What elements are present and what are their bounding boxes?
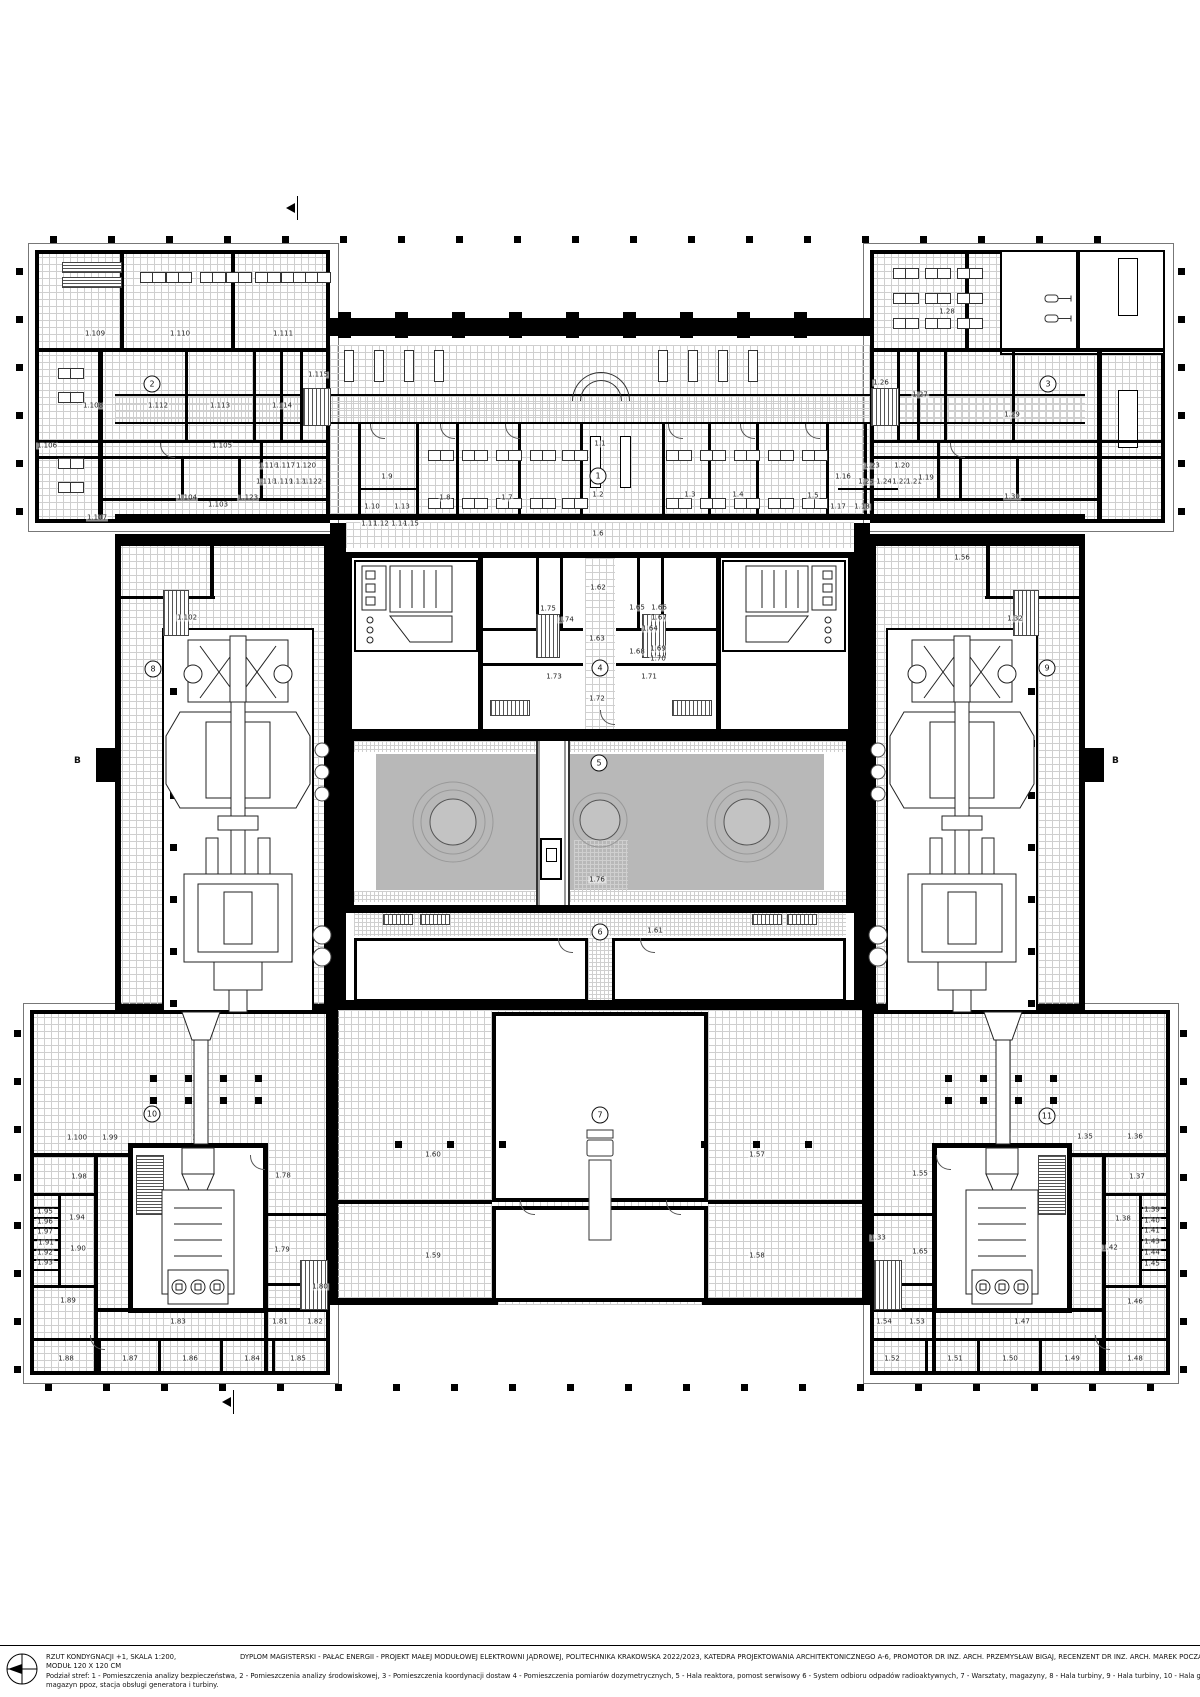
wall [959,456,962,500]
column-dot [1180,1078,1187,1085]
room-outline [886,628,1038,1012]
room-label-1.49: 1.49 [1063,1356,1081,1363]
column-dot [170,948,177,955]
desk [957,318,983,329]
column-dot [1028,688,1035,695]
section-label-b-left: B [74,756,81,766]
drawing-title: RZUT KONDYGNACJI +1, SKALA 1:200, [46,1653,176,1661]
column-dot [170,844,177,851]
column-dot [753,1141,760,1148]
column-dot [14,1366,21,1373]
column-dot [1028,844,1035,851]
column-dot [1089,1384,1096,1391]
column-dot [1094,236,1101,243]
wall [185,348,188,440]
wall [260,440,263,500]
room-label-1.76: 1.76 [588,877,606,884]
column-dot [14,1078,21,1085]
desk [226,272,252,283]
room-label-1.9: 1.9 [380,474,393,481]
room-label-1.75: 1.75 [539,606,557,613]
room-label-1.87: 1.87 [121,1356,139,1363]
room-label-1.92: 1.92 [36,1250,54,1257]
wall [358,422,361,514]
room-label-1.18: 1.18 [853,504,871,511]
wall [115,534,330,542]
room-label-1.38: 1.38 [1114,1216,1132,1223]
column-dot [625,1384,632,1391]
column-dot [1180,1174,1187,1181]
room-label-1.46: 1.46 [1126,1299,1144,1306]
room-label-1.70: 1.70 [649,656,667,663]
wall [702,1298,870,1305]
column-dot [1028,792,1035,799]
desk [58,482,84,493]
room-label-1.8: 1.8 [438,495,451,502]
wall [862,1010,870,1305]
zone-marker-6: 6 [592,924,609,941]
column-dot [804,236,811,243]
room-label-1.79: 1.79 [273,1247,291,1254]
room-label-1.98: 1.98 [70,1174,88,1181]
room-outline [1000,250,1165,355]
column-dot [170,792,177,799]
column-dot [393,1384,400,1391]
room-label-1.86: 1.86 [181,1356,199,1363]
room-label-1.4: 1.4 [731,492,744,499]
room-label-1.90: 1.90 [69,1246,87,1253]
floor-grate [787,914,817,925]
column-dot [688,236,695,243]
room-label-1.115: 1.115 [307,372,329,379]
room-label-1.45: 1.45 [1143,1261,1161,1268]
room-label-1.51: 1.51 [946,1356,964,1363]
column-dot [220,1075,227,1082]
desk [802,498,828,509]
room-label-1.65: 1.65 [628,605,646,612]
wall [1104,1193,1170,1196]
room-label-1.80: 1.80 [311,1284,329,1291]
column-dot [108,236,115,243]
wall [115,422,1085,424]
room-label-1.112: 1.112 [147,403,169,410]
column-dot [920,236,927,243]
room-label-1.123: 1.123 [237,495,259,502]
wall [1082,748,1104,782]
room-label-1.15: 1.15 [402,521,420,528]
room-label-1.6: 1.6 [591,531,604,538]
wall [870,498,1100,501]
room-label-1.81: 1.81 [271,1319,289,1326]
column-dot [1178,364,1185,371]
column-dot [150,1075,157,1082]
wall [346,1000,854,1010]
desk [957,268,983,279]
column-dot [16,364,23,371]
room-outline [546,848,557,862]
room-label-1.120: 1.120 [295,463,317,470]
room-outline [620,436,631,488]
desk [925,268,951,279]
column-dot [166,236,173,243]
cooling-fins [136,1155,164,1215]
column-dot [398,236,405,243]
wall [330,318,870,336]
zone-marker-1: 1 [590,468,607,485]
desk [530,450,556,461]
room-label-1.41: 1.41 [1143,1228,1161,1235]
column-dot [14,1030,21,1037]
room-label-1.100: 1.100 [66,1135,88,1142]
column-dot [857,1384,864,1391]
section-line [233,1390,234,1414]
column-dot [1178,508,1185,515]
room-label-1.29: 1.29 [1003,412,1021,419]
desk [734,498,760,509]
room-label-1.104: 1.104 [176,495,198,502]
cooling-fins [1038,1155,1066,1215]
room-label-1.48: 1.48 [1126,1356,1144,1363]
column-dot [16,268,23,275]
wall [1012,348,1015,440]
column-dot [335,1384,342,1391]
column-dot [915,1384,922,1391]
room-label-1.28: 1.28 [938,309,956,316]
room-label-1.61: 1.61 [646,928,664,935]
column-dot [1178,460,1185,467]
desk [58,392,84,403]
column-dot [1015,1097,1022,1104]
wall [1097,456,1165,459]
floor-grate [383,914,413,925]
zone-marker-8: 8 [145,661,162,678]
wall [870,1338,1170,1341]
room-label-1.37: 1.37 [1128,1174,1146,1181]
wall [838,488,898,490]
room-label-1.59: 1.59 [424,1253,442,1260]
room-label-1.2: 1.2 [591,492,604,499]
desk [200,272,226,283]
column-dot [978,236,985,243]
column-pier [338,312,351,338]
desk [666,498,692,509]
skylight-slit [748,350,758,382]
room-outline [722,560,846,652]
floor-grate [752,914,782,925]
room-label-1.73: 1.73 [545,674,563,681]
room-label-1.111: 1.111 [272,331,294,338]
column-dot [277,1384,284,1391]
desk [562,450,588,461]
wall [334,1200,492,1204]
column-dot [1180,1222,1187,1229]
desk [700,450,726,461]
room-label-1.7: 1.7 [500,495,513,502]
room-label-1.19: 1.19 [917,475,935,482]
column-dot [862,236,869,243]
column-dot [1050,1075,1057,1082]
section-arrow-icon [222,1397,231,1407]
column-dot [14,1174,21,1181]
desk [925,293,951,304]
wall [456,422,459,514]
column-dot [805,1141,812,1148]
column-dot [980,1097,987,1104]
wall [30,1285,96,1288]
column-dot [395,1141,402,1148]
column-dot [1015,1075,1022,1082]
column-dot [1180,1030,1187,1037]
column-dot [683,1384,690,1391]
desk [255,272,281,283]
skylight-slit [374,350,384,382]
column-dot [45,1384,52,1391]
room-label-1.13: 1.13 [393,504,411,511]
column-dot [16,460,23,467]
wall [30,1193,96,1196]
room-label-1.47: 1.47 [1013,1319,1031,1326]
wall [870,1213,936,1216]
desk [666,450,692,461]
column-dot [741,1384,748,1391]
desk [562,498,588,509]
column-dot [1028,896,1035,903]
skylight-slit [718,350,728,382]
wall [253,348,256,440]
room-label-1.57: 1.57 [748,1152,766,1159]
wall [358,488,418,490]
zone-marker-5: 5 [591,755,608,772]
desk [768,450,794,461]
wall [272,1338,275,1375]
wall [280,348,283,440]
room-label-1.53: 1.53 [908,1319,926,1326]
room-label-1.109: 1.109 [84,331,106,338]
wall [30,1269,58,1271]
room-label-1.25: 1.25 [857,479,875,486]
wall [220,1338,223,1375]
column-dot [509,1384,516,1391]
room-label-1.16: 1.16 [834,474,852,481]
desk [140,272,166,283]
shelving [62,262,122,273]
desk [700,498,726,509]
wall [616,628,719,631]
column-dot [185,1075,192,1082]
column-pier [395,312,408,338]
desk [893,293,919,304]
room-label-1.60: 1.60 [424,1152,442,1159]
column-dot [746,236,753,243]
room-label-1.27: 1.27 [911,392,929,399]
desk [893,268,919,279]
column-dot [1178,268,1185,275]
wall [854,523,870,1010]
wall [1039,1338,1042,1375]
desk [802,450,828,461]
column-dot [456,236,463,243]
room-label-1.94: 1.94 [68,1215,86,1222]
column-dot [1031,1384,1038,1391]
room-label-1.10: 1.10 [363,504,381,511]
room-label-1.110: 1.110 [169,331,191,338]
stairs [871,388,899,426]
room-label-1.96: 1.96 [36,1219,54,1226]
room-label-1.65: 1.65 [911,1249,929,1256]
column-dot [1028,1000,1035,1007]
column-dot [701,1141,708,1148]
wall [115,514,1085,520]
room-label-1.99: 1.99 [101,1135,119,1142]
wall [925,1338,928,1375]
wall [870,534,1085,542]
room-label-1.1: 1.1 [593,441,606,448]
wall [1076,250,1080,348]
zones-legend: Podział stref: 1 - Pomieszczenia analizy… [46,1672,1200,1680]
column-pier [737,312,750,338]
wall [30,1338,330,1341]
room-outline [354,938,588,1002]
column-dot [1028,740,1035,747]
column-dot [572,236,579,243]
room-label-1.85: 1.85 [289,1356,307,1363]
room-label-1.114: 1.114 [271,403,293,410]
room-label-1.95: 1.95 [36,1209,54,1216]
room-label-1.23: 1.23 [863,463,881,470]
floor-grate [420,914,450,925]
column-dot [1028,948,1035,955]
wall [35,440,330,443]
room-label-1.91: 1.91 [37,1240,55,1247]
column-dot [185,1097,192,1104]
wall [210,540,214,599]
section-arrow-icon [286,203,295,213]
room-outline [1118,258,1138,316]
column-dot [220,1097,227,1104]
column-pier [452,312,465,338]
zone-marker-10: 10 [144,1106,161,1123]
zone-marker-7: 7 [592,1107,609,1124]
desk [166,272,192,283]
room-label-1.36: 1.36 [1126,1134,1144,1141]
room-label-1.17: 1.17 [829,504,847,511]
room-label-1.93: 1.93 [36,1260,54,1267]
column-dot [1180,1318,1187,1325]
room-label-1.68: 1.68 [628,649,646,656]
room-label-1.30: 1.30 [1003,494,1021,501]
tile-strip [588,938,612,1002]
stairs [303,388,331,426]
column-dot [1178,316,1185,323]
wall [937,440,940,500]
skylight-slit [688,350,698,382]
room-label-1.122: 1.122 [301,479,323,486]
desk [281,272,307,283]
room-label-1.63: 1.63 [588,636,606,643]
column-dot [103,1384,110,1391]
wall [637,558,640,628]
room-label-1.35: 1.35 [1076,1134,1094,1141]
room-label-1.64: 1.64 [641,626,659,633]
transformer-bank [490,700,530,716]
room-label-1.105: 1.105 [211,443,233,450]
zone-marker-3: 3 [1040,376,1057,393]
wall [98,348,103,520]
column-dot [945,1075,952,1082]
room-label-1.24: 1.24 [875,479,893,486]
room-label-1.31: 1.31 [924,655,942,662]
wall [100,456,330,459]
wall [716,558,721,729]
column-dot [161,1384,168,1391]
zone-marker-4: 4 [592,660,609,677]
desk [462,450,488,461]
room-label-1.44: 1.44 [1143,1250,1161,1257]
wall [158,1338,161,1375]
room-label-1.58: 1.58 [748,1253,766,1260]
room-label-1.82: 1.82 [306,1319,324,1326]
desk [530,498,556,509]
column-dot [16,316,23,323]
room-label-1.32: 1.32 [1006,616,1024,623]
wall [264,1153,268,1375]
zone-marker-11: 11 [1039,1108,1056,1125]
column-dot [1178,412,1185,419]
project-title: DYPLOM MAGISTERSKI - PAŁAC ENERGII - PRO… [240,1653,1200,1661]
wall [870,440,1165,443]
column-dot [567,1384,574,1391]
room-label-1.3: 1.3 [683,492,696,499]
wall [944,348,947,440]
room-outline [162,628,314,1012]
wall [231,250,235,348]
column-dot [980,1075,987,1082]
column-dot [170,1000,177,1007]
north-arrow-icon [4,1651,40,1687]
room-label-1.83: 1.83 [169,1319,187,1326]
room-label-1.56: 1.56 [953,555,971,562]
wall [1068,1153,1170,1157]
column-dot [451,1384,458,1391]
column-dot [630,236,637,243]
room-label-1.74: 1.74 [557,617,575,624]
desk [305,272,331,283]
column-dot [150,1097,157,1104]
room-label-1.78: 1.78 [274,1173,292,1180]
wall [932,1153,936,1375]
room-label-1.52: 1.52 [883,1356,901,1363]
stairs [1013,590,1039,636]
column-dot [973,1384,980,1391]
room-outline [492,1206,708,1302]
zone-marker-2: 2 [144,376,161,393]
wall [416,422,419,514]
column-dot [16,412,23,419]
room-label-1.62: 1.62 [589,585,607,592]
wall [58,1193,61,1288]
title-block: RZUT KONDYGNACJI +1, SKALA 1:200, MODUŁ … [0,1645,1200,1697]
stairs [874,1260,902,1310]
column-dot [1180,1270,1187,1277]
column-dot [1180,1366,1187,1373]
column-dot [945,1097,952,1104]
room-label-1.117: 1.117 [274,463,296,470]
zones-legend-2: magazyn ppoz, stacja obsługi generatora … [46,1681,218,1689]
room-label-1.33: 1.33 [869,1235,887,1242]
room-label-1.102: 1.102 [176,615,198,622]
transformer-bank [672,700,712,716]
column-pier [623,312,636,338]
